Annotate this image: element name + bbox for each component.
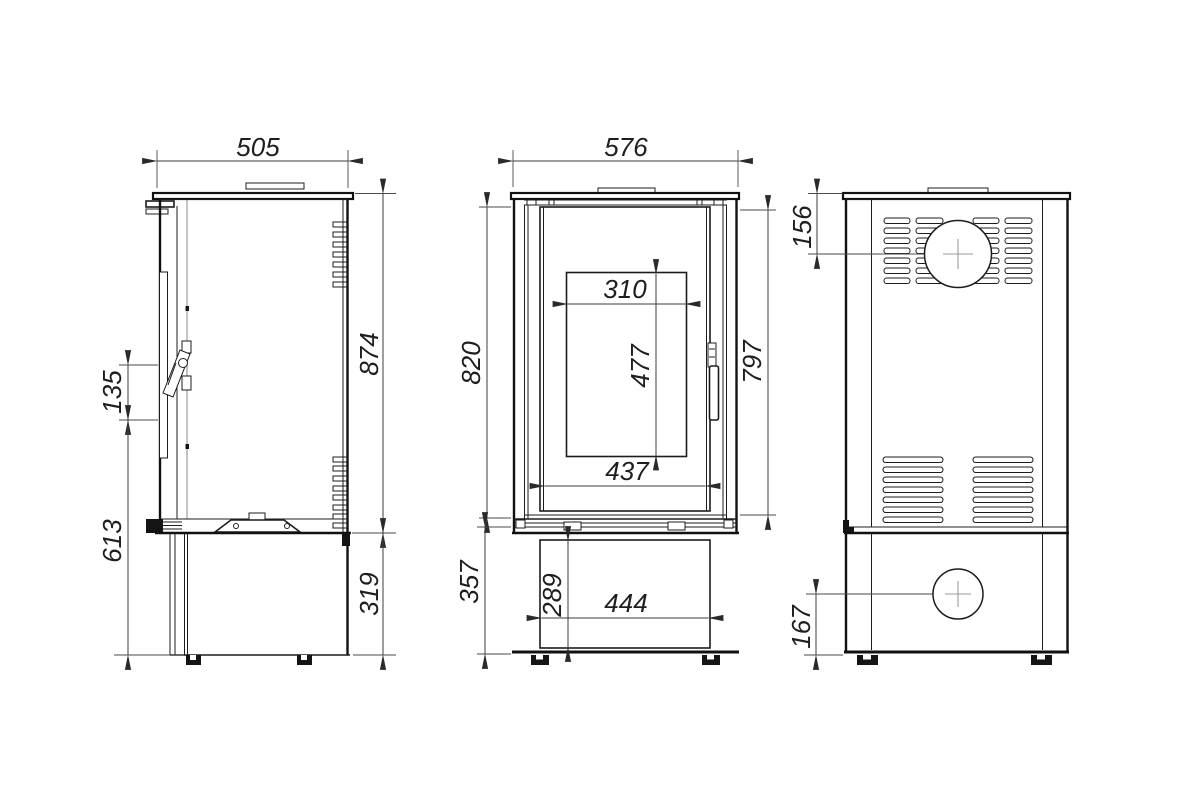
dim-label-front-width: 576 [604, 132, 648, 162]
dim-label-rear-inlet-offset: 167 [786, 604, 816, 649]
dim-front-base-panel-height: 289 [537, 541, 568, 647]
dim-label-front-door-height: 797 [737, 339, 767, 384]
top-plate [843, 193, 1070, 199]
dim-front-width: 576 [513, 132, 738, 187]
feet [857, 655, 1052, 665]
dim-side-handle: 135 [97, 365, 158, 420]
damper-lever [215, 513, 300, 532]
dim-label-front-glass-width: 310 [603, 274, 647, 304]
dim-label-side-handle: 135 [97, 370, 127, 414]
top-plate [153, 193, 353, 199]
dim-label-front-glass-height: 477 [625, 343, 655, 388]
drawing-sheet: 505 874 319 135 613 [0, 0, 1200, 800]
top-plate [511, 193, 739, 199]
door-top-step [146, 209, 168, 214]
dim-label-front-height-left: 820 [456, 341, 486, 385]
side-lower-vents [333, 457, 347, 528]
rear-view: 156 167 [786, 188, 1070, 665]
dim-front-door-height: 797 [737, 210, 776, 515]
front-view: 576 820 357 797 310 477 [454, 132, 776, 665]
dim-front-door-width: 437 [545, 456, 706, 486]
handle-recess [160, 272, 168, 458]
dim-label-side-width: 505 [236, 132, 280, 162]
dim-label-front-door-width: 437 [605, 456, 650, 486]
dim-label-side-base: 319 [354, 572, 384, 615]
dim-label-front-base-panel-width: 444 [604, 588, 647, 618]
dim-label-side-height: 874 [354, 332, 384, 375]
rear-lower-vents [883, 457, 1033, 523]
dim-label-front-base-height: 357 [454, 559, 484, 604]
dim-front-base-height: 357 [454, 527, 511, 654]
dim-label-side-front-lower: 613 [97, 519, 127, 563]
feet [531, 655, 720, 665]
dim-side-width: 505 [157, 132, 348, 188]
side-upper-vents [333, 222, 347, 287]
dim-front-glass-width: 310 [568, 274, 686, 304]
feet [186, 655, 312, 665]
dim-side-base: 319 [353, 533, 396, 655]
side-view: 505 874 319 135 613 [97, 132, 396, 665]
dim-label-rear-flue-offset: 156 [787, 205, 817, 249]
stove-technical-drawing: 505 874 319 135 613 [0, 0, 1200, 800]
dim-side-front-lower: 613 [97, 420, 184, 655]
ash-lip [146, 519, 163, 533]
top-plate-tab [246, 183, 304, 189]
dim-side-height: 874 [352, 194, 396, 534]
dim-rear-inlet-offset: 167 [786, 594, 843, 655]
door-handle [708, 343, 719, 420]
dim-front-height-left: 820 [456, 207, 511, 518]
dim-label-front-base-panel-height: 289 [537, 573, 567, 617]
dim-rear-flue-offset: 156 [787, 194, 843, 255]
